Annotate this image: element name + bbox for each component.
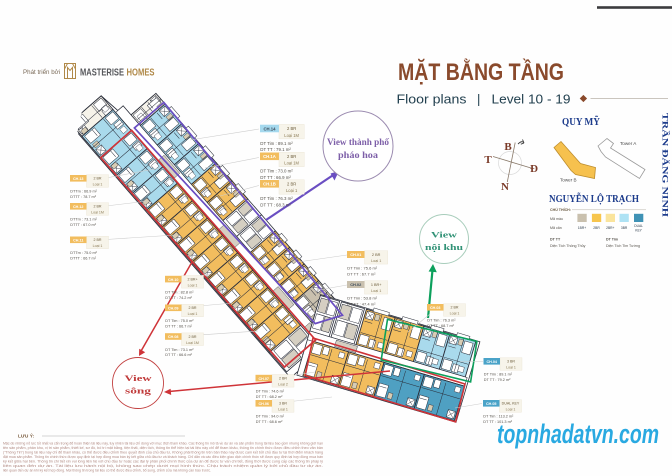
svg-text:Loại 1: Loại 1 <box>188 283 198 287</box>
svg-text:Floor plans: Floor plans <box>397 92 468 107</box>
svg-text:DTTT : 67.0 m²: DTTT : 67.0 m² <box>70 223 96 227</box>
svg-text:DT TT : 68.6 m²: DT TT : 68.6 m² <box>256 420 283 424</box>
svg-text:(“Thông Tin”) trong tài liệu n: (“Thông Tin”) trong tài liệu này chỉ để … <box>3 451 323 455</box>
svg-text:Loại 1: Loại 1 <box>278 408 288 412</box>
svg-text:DT TT : 68.2 m²: DT TT : 68.2 m² <box>256 395 283 399</box>
svg-text:Mã căn: Mã căn <box>550 226 562 230</box>
svg-text:2 BR: 2 BR <box>189 306 197 310</box>
svg-text:Loại 1: Loại 1 <box>371 289 381 293</box>
svg-text:Loại 1: Loại 1 <box>286 188 298 193</box>
svg-text:2 BR: 2 BR <box>287 154 296 159</box>
svg-text:MẶT BẰNG TẦNG: MẶT BẰNG TẦNG <box>398 58 564 86</box>
svg-text:DT TT : 47.4 m²: DT TT : 47.4 m² <box>347 301 376 306</box>
svg-text:CH.13: CH.13 <box>73 177 83 181</box>
svg-text:DT Tim : 76.3 m²: DT Tim : 76.3 m² <box>260 196 293 201</box>
svg-text:Diện Tích Thông Thủy: Diện Tích Thông Thủy <box>550 244 586 248</box>
svg-text:3 BR: 3 BR <box>279 402 287 406</box>
svg-text:DT TT : 68.7 m²: DT TT : 68.7 m² <box>427 324 454 328</box>
svg-text:HOMES: HOMES <box>127 68 155 79</box>
svg-text:ký kết giữa hai bên. Thông tin: ký kết giữa hai bên. Thông tin chi tiết … <box>3 460 323 464</box>
svg-text:DTTT : 66.7 m²: DTTT : 66.7 m² <box>70 257 96 261</box>
svg-text:CH.07: CH.07 <box>259 377 269 381</box>
svg-text:CH.11: CH.11 <box>73 238 83 242</box>
svg-text:Loại 1: Loại 1 <box>93 183 103 187</box>
svg-text:nội khu: nội khu <box>425 242 463 252</box>
svg-text:2 BR: 2 BR <box>189 335 197 339</box>
svg-text:2 BR: 2 BR <box>451 306 459 310</box>
svg-text:View: View <box>431 230 458 240</box>
svg-text:DUAL KEY: DUAL KEY <box>502 402 520 406</box>
svg-text:1 BR+: 1 BR+ <box>371 283 382 287</box>
svg-text:DT Tim : 94.0 m²: DT Tim : 94.0 m² <box>256 415 285 419</box>
svg-text:DT TT : 66.6 m²: DT TT : 66.6 m² <box>165 353 192 357</box>
svg-text:Loại 1: Loại 1 <box>188 312 198 316</box>
svg-text:2 BR+: 2 BR+ <box>187 278 197 282</box>
svg-text:2 BR: 2 BR <box>94 238 102 242</box>
svg-text:DT TT: DT TT <box>550 238 561 242</box>
svg-text:DT Tim : 113.2 m²: DT Tim : 113.2 m² <box>483 415 514 419</box>
svg-text:tên sản phẩm, phân khu, vị trí: tên sản phẩm, phân khu, vị trí sản phẩm,… <box>3 445 323 450</box>
svg-text:liên quan đến dự án khi ký kết: liên quan đến dự án khi ký kết hợp đồng.… <box>3 469 211 473</box>
svg-text:1BR+: 1BR+ <box>578 226 586 230</box>
svg-text:DT Tim : 89.1 m²: DT Tim : 89.1 m² <box>260 141 293 146</box>
svg-text:đặt mua sản phẩm. Thông tin ch: đặt mua sản phẩm. Thông tin chính thức đ… <box>3 454 323 459</box>
svg-text:CH.09: CH.09 <box>168 306 178 310</box>
svg-text:2 BR: 2 BR <box>287 181 296 186</box>
svg-text:T: T <box>484 154 492 166</box>
svg-text:QUY MỸ: QUY MỸ <box>562 116 601 128</box>
svg-text:3 BR: 3 BR <box>507 360 515 364</box>
svg-text:2 BR: 2 BR <box>279 377 287 381</box>
svg-text:DTTm : 73.1 m²: DTTm : 73.1 m² <box>70 218 97 222</box>
svg-text:Loại 1: Loại 1 <box>506 408 516 412</box>
svg-text:topnhadatvn.com: topnhadatvn.com <box>497 419 659 449</box>
svg-text:DT Tim : 75.0 m²: DT Tim : 75.0 m² <box>165 319 194 323</box>
svg-text:pháo hoa: pháo hoa <box>338 151 378 161</box>
svg-text:Loại 1M: Loại 1M <box>91 211 104 215</box>
svg-text:CH.1A: CH.1A <box>263 154 276 159</box>
svg-text:2 BR: 2 BR <box>94 205 102 209</box>
svg-text:MASTERISE: MASTERISE <box>80 68 124 79</box>
svg-text:Diện Tích Tim Tường: Diện Tích Tim Tường <box>606 244 640 248</box>
svg-text:CHÚ THÍCH:: CHÚ THÍCH: <box>550 207 571 212</box>
svg-text:DT Tim : 53.8 m²: DT Tim : 53.8 m² <box>347 296 377 301</box>
svg-text:TRẦN ĐĂNG NINH: TRẦN ĐĂNG NINH <box>661 113 671 217</box>
svg-text:Mặc dù những nỗ lực tốt nhất v: Mặc dù những nỗ lực tốt nhất và cẩn trọn… <box>3 440 323 445</box>
svg-text:|: | <box>477 92 480 107</box>
svg-text:3BR: 3BR <box>621 226 628 230</box>
svg-text:2BR+: 2BR+ <box>606 226 614 230</box>
svg-text:Phát triển bởi: Phát triển bởi <box>23 69 60 76</box>
svg-text:DT Tim : 75.6 m²: DT Tim : 75.6 m² <box>347 266 377 271</box>
svg-text:CH.08: CH.08 <box>168 335 178 339</box>
svg-text:Loại 2: Loại 2 <box>278 382 288 386</box>
svg-text:CH.02: CH.02 <box>350 282 362 287</box>
svg-text:CH.01: CH.01 <box>350 252 362 257</box>
svg-text:DT TT : 79.1 m²: DT TT : 79.1 m² <box>260 147 291 152</box>
svg-text:2 BR: 2 BR <box>287 126 296 131</box>
svg-text:2 BR: 2 BR <box>372 253 381 257</box>
svg-text:Tower A: Tower A <box>620 141 637 146</box>
svg-text:2BR: 2BR <box>593 226 600 230</box>
svg-text:Level 10 - 19: Level 10 - 19 <box>492 92 571 107</box>
svg-text:CH.05: CH.05 <box>486 402 496 406</box>
svg-text:CH.14: CH.14 <box>263 126 276 131</box>
svg-text:B: B <box>504 141 512 153</box>
svg-text:View thành phố: View thành phố <box>327 137 389 148</box>
svg-text:CH.10: CH.10 <box>168 278 178 282</box>
svg-text:sông: sông <box>125 386 152 396</box>
svg-text:DT Tim : 89.1 m²: DT Tim : 89.1 m² <box>484 373 513 377</box>
svg-text:CH.04: CH.04 <box>487 360 498 364</box>
svg-text:NGUYỄN LỘ TRẠCH: NGUYỄN LỘ TRẠCH <box>549 192 639 205</box>
svg-text:Loại 1: Loại 1 <box>371 259 381 263</box>
svg-text:CH.12: CH.12 <box>73 205 83 209</box>
svg-text:KEY: KEY <box>635 229 642 233</box>
svg-text:Loại 1: Loại 1 <box>450 312 460 316</box>
svg-text:LƯU Ý:: LƯU Ý: <box>18 433 35 440</box>
svg-text:Loại 1: Loại 1 <box>506 366 516 370</box>
svg-text:Đ: Đ <box>530 163 538 175</box>
svg-text:Loại 1: Loại 1 <box>93 244 103 248</box>
svg-text:liên quan đến dự án. Tài liệu: liên quan đến dự án. Tài liệu lưu hành n… <box>3 464 323 468</box>
svg-text:DT TT : 74.2 m²: DT TT : 74.2 m² <box>165 296 192 300</box>
svg-text:DT Tim : 82.8 m²: DT Tim : 82.8 m² <box>165 290 194 294</box>
svg-text:DT TT : 67.7 m²: DT TT : 67.7 m² <box>347 271 376 276</box>
svg-text:Mã màu: Mã màu <box>550 217 563 221</box>
svg-text:DT TT : 66.9 m²: DT TT : 66.9 m² <box>260 175 291 180</box>
svg-text:DT Tim: DT Tim <box>606 238 618 242</box>
svg-text:Loại 1M: Loại 1M <box>284 161 299 166</box>
svg-text:DUAL: DUAL <box>634 224 643 228</box>
svg-text:View: View <box>125 373 153 383</box>
svg-text:DTTm : 75.0 m²: DTTm : 75.0 m² <box>70 251 97 255</box>
svg-text:DT TT : 79.2 m²: DT TT : 79.2 m² <box>484 378 511 382</box>
svg-text:DT Tim : 76.3 m²: DT Tim : 76.3 m² <box>427 319 456 323</box>
svg-text:N: N <box>501 181 509 193</box>
svg-text:DT Tim : 73.0 m²: DT Tim : 73.0 m² <box>260 169 293 174</box>
svg-text:Loại 1M: Loại 1M <box>186 341 199 345</box>
svg-text:Tower B: Tower B <box>560 178 577 183</box>
svg-text:CH.03: CH.03 <box>430 306 440 310</box>
svg-text:DT TT : 66.7 m²: DT TT : 66.7 m² <box>165 325 192 329</box>
svg-text:DT Tim : 73.1 m²: DT Tim : 73.1 m² <box>165 348 194 352</box>
svg-text:DTTm : 66.9 m²: DTTm : 66.9 m² <box>70 190 97 194</box>
svg-text:DT TT : 68.3 m²: DT TT : 68.3 m² <box>260 202 291 207</box>
svg-text:CH.1B: CH.1B <box>263 182 276 187</box>
svg-text:DTTT : 78.7 m²: DTTT : 78.7 m² <box>70 195 96 199</box>
svg-text:DT Tim : 74.6 m²: DT Tim : 74.6 m² <box>256 389 285 393</box>
svg-text:Loại 1M: Loại 1M <box>284 133 299 138</box>
svg-text:2 BR: 2 BR <box>94 177 102 181</box>
svg-text:CH.06: CH.06 <box>259 402 269 406</box>
